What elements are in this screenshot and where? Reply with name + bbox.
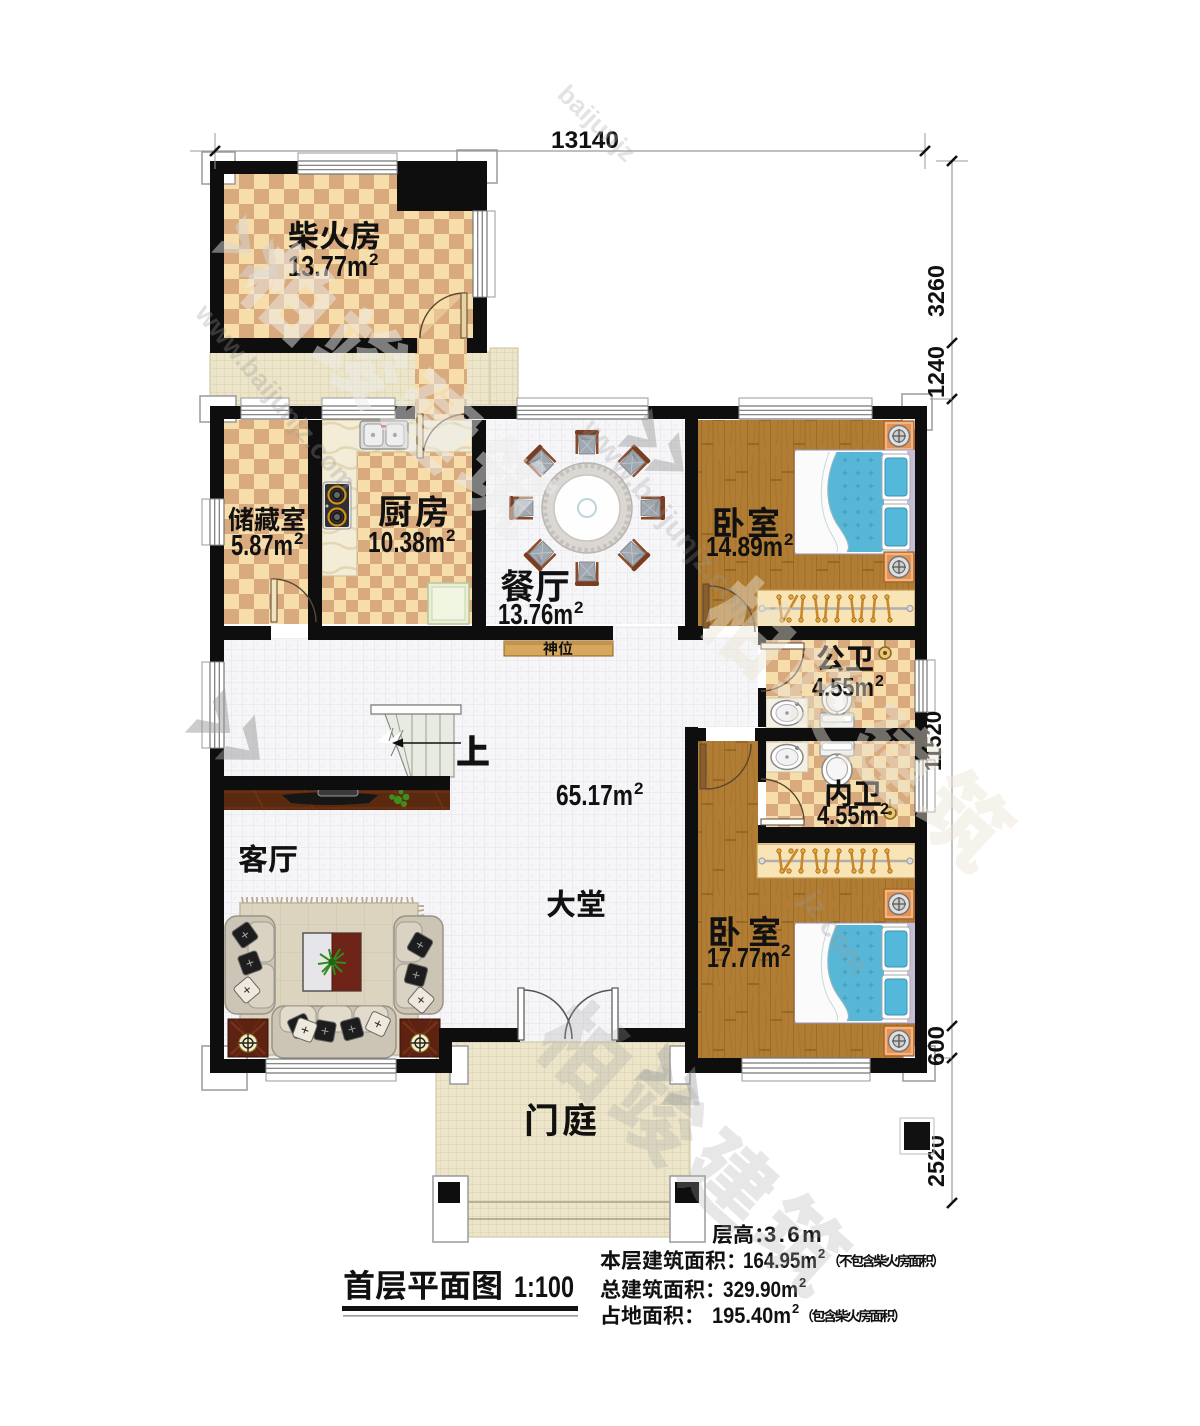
svg-text:2: 2 bbox=[792, 1301, 799, 1316]
svg-text:3260: 3260 bbox=[923, 265, 949, 317]
svg-text:1:100: 1:100 bbox=[514, 1271, 574, 1304]
svg-text:5.87m: 5.87m bbox=[231, 530, 293, 562]
svg-text:17.77m: 17.77m bbox=[707, 942, 780, 973]
svg-text:2: 2 bbox=[781, 941, 790, 960]
svg-text:600: 600 bbox=[923, 1026, 949, 1066]
svg-text:2: 2 bbox=[634, 779, 643, 798]
svg-text:1240: 1240 bbox=[923, 346, 949, 398]
svg-text:2: 2 bbox=[446, 526, 455, 545]
svg-text:2: 2 bbox=[784, 530, 793, 549]
svg-text:2: 2 bbox=[574, 598, 583, 617]
svg-text:4.55m: 4.55m bbox=[817, 800, 879, 830]
svg-text:2: 2 bbox=[294, 529, 303, 548]
svg-text:2: 2 bbox=[875, 673, 884, 690]
svg-text:329.90m: 329.90m bbox=[723, 1277, 798, 1302]
svg-text:2: 2 bbox=[369, 250, 378, 269]
svg-text:195.40m: 195.40m bbox=[712, 1303, 791, 1328]
svg-text:13.76m: 13.76m bbox=[498, 599, 573, 631]
svg-text:65.17m: 65.17m bbox=[556, 780, 633, 812]
svg-text:10.38m: 10.38m bbox=[368, 527, 445, 559]
